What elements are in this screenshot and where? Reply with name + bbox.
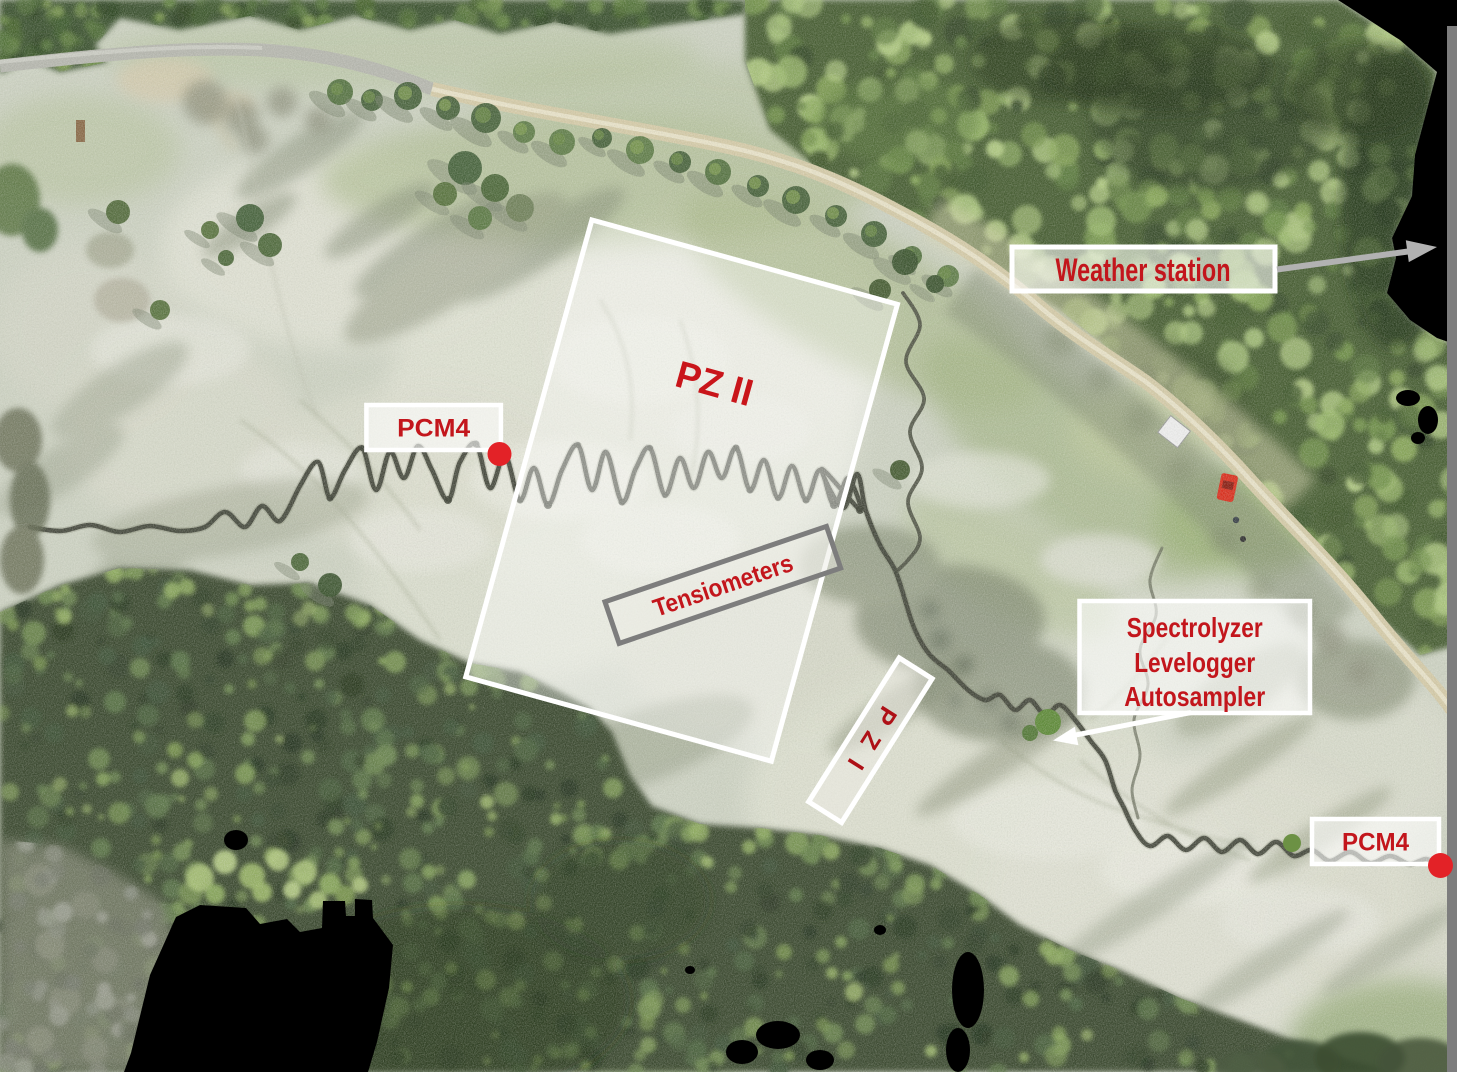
svg-text:PCM4: PCM4	[397, 415, 470, 443]
svg-text:Weather station: Weather station	[1056, 252, 1231, 288]
svg-text:Autosampler: Autosampler	[1124, 681, 1265, 712]
svg-text:PCM4: PCM4	[1342, 829, 1409, 857]
svg-text:Spectrolyzer: Spectrolyzer	[1127, 612, 1263, 643]
svg-text:Levelogger: Levelogger	[1134, 647, 1255, 678]
